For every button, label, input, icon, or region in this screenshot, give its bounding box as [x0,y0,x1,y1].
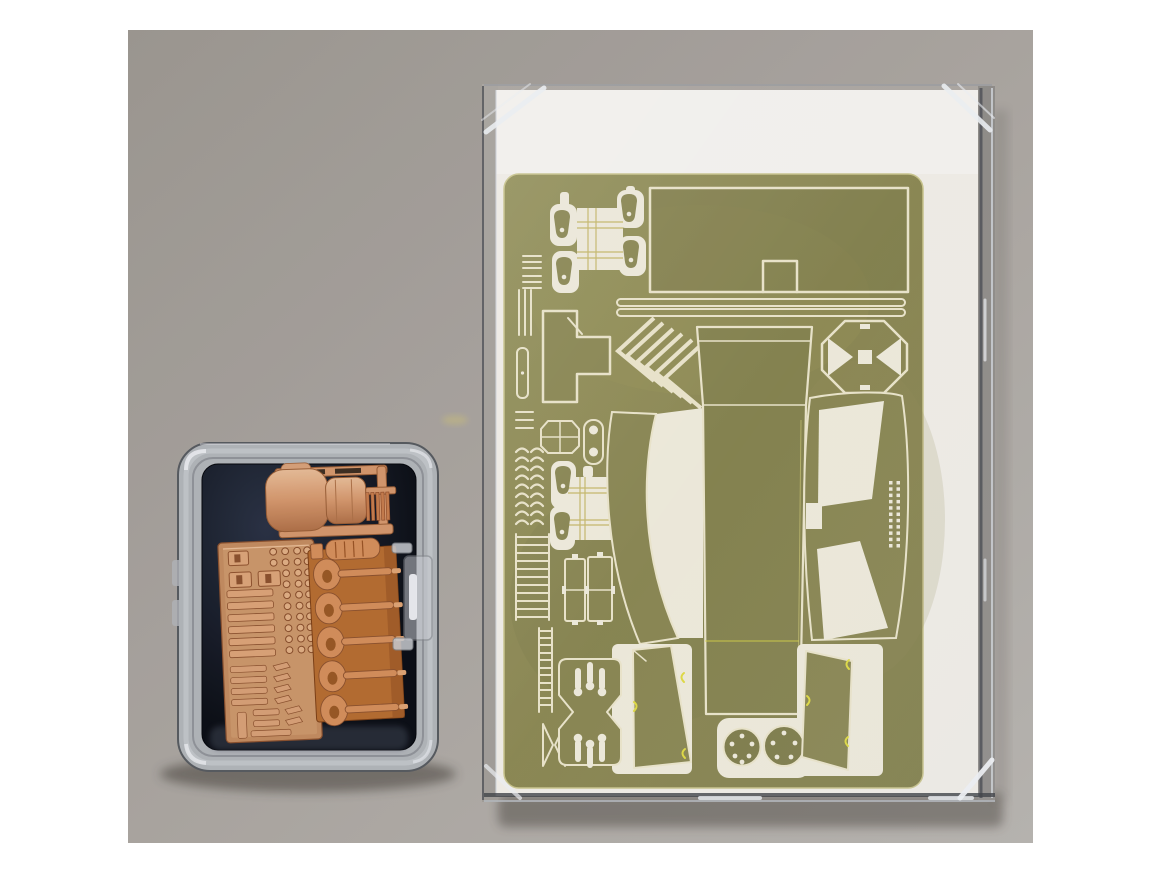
scene [0,0,1161,871]
photo-vignette [128,30,1033,843]
photo-frame [0,0,1161,871]
